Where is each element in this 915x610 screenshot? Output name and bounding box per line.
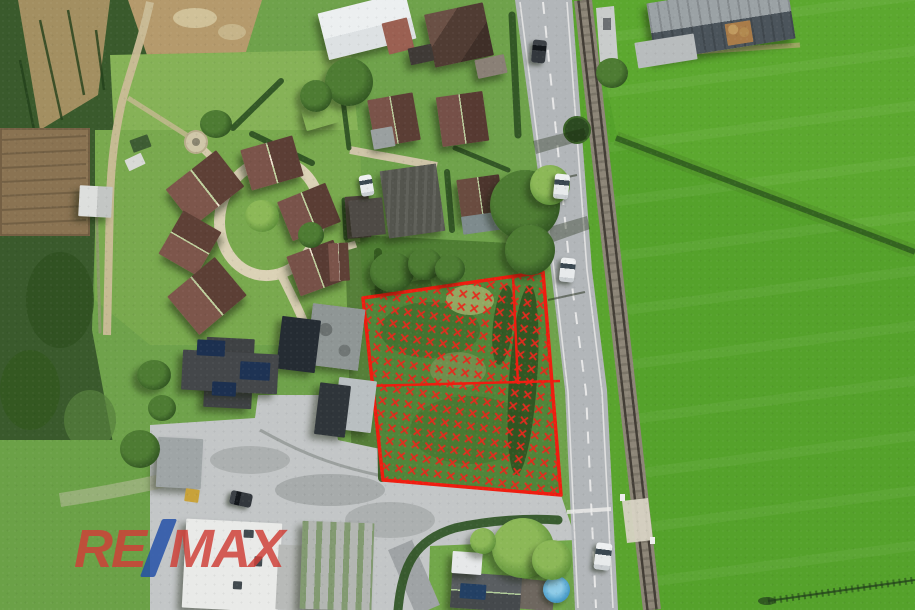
yellow-machine (184, 488, 200, 503)
solar-panel (240, 361, 271, 381)
tree (300, 80, 332, 112)
tree (120, 430, 160, 468)
tree (137, 360, 171, 390)
van (593, 542, 612, 571)
tree (325, 58, 373, 106)
van (553, 173, 571, 199)
large-grey-roof (380, 163, 446, 238)
house-roof (436, 91, 490, 147)
aerial-photo: RE / MAX (0, 0, 915, 610)
tree (298, 222, 324, 248)
small-white-house-roof (78, 185, 113, 218)
solar-panel (197, 339, 226, 356)
house-annex-roof (370, 126, 395, 150)
tree (435, 255, 465, 283)
house-roof (348, 197, 386, 237)
tree (505, 225, 555, 275)
wood-pile (724, 20, 753, 46)
car (559, 257, 576, 282)
tree (148, 395, 176, 421)
solar-panel (460, 583, 487, 600)
parcel (363, 272, 561, 495)
rail-crossing (622, 498, 653, 543)
remax-watermark: RE / MAX (74, 522, 283, 577)
tree (245, 200, 279, 232)
moss-roof-hall (299, 521, 374, 610)
carport-roof (156, 437, 204, 489)
remax-re: RE (74, 522, 145, 576)
garden-plot (0, 128, 90, 236)
solar-panel (212, 381, 237, 396)
round-pool (543, 576, 570, 603)
tree (470, 528, 496, 554)
tree (596, 58, 628, 88)
house-roof (328, 243, 350, 282)
dark-panel-roof (314, 382, 351, 437)
dark-flat-roof (276, 316, 321, 373)
tree (370, 252, 414, 292)
car (531, 39, 547, 63)
white-garage-roof (451, 551, 482, 575)
remax-max: MAX (169, 522, 283, 576)
tree (532, 540, 572, 580)
tree (200, 110, 232, 138)
